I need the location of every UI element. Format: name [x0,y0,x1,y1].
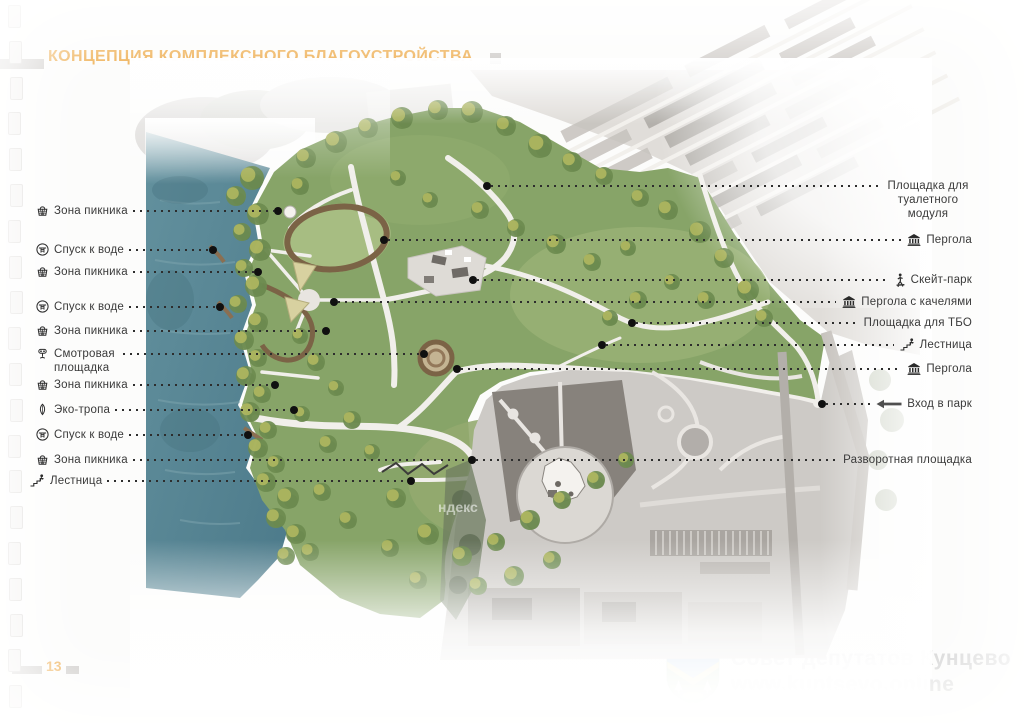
leader-dot [322,327,330,335]
label-pergola-1: Пергола [380,233,972,247]
leader-dot [244,431,252,439]
scanned-page: ндекс КОНЦЕПЦИЯ КОМПЛЕКСНОГО БЛАГОУСТРОЙ… [0,0,1024,723]
eco-leaf-icon [36,403,49,416]
label-text: Пергола [926,233,972,247]
label-stairs-left: Лестница [30,474,415,488]
leader-line [133,384,271,386]
leader-line [133,330,322,332]
stairs-person-icon [900,338,915,351]
label-text: Спуск к воде [54,428,124,442]
label-pergola-swings: Пергола с качелями [330,295,972,309]
label-pergola-2: Пергола [453,362,972,376]
label-turnaround-area: Разворотная площадка [468,453,972,467]
label-stairs-right: Лестница [598,338,972,352]
label-text: Лестница [920,338,972,352]
arrow-left-icon [876,399,902,409]
leader-line [477,279,889,281]
water-descent-icon [36,428,49,441]
leader-line [636,322,859,324]
leader-dot [420,350,428,358]
label-text: Вход в парк [907,397,972,411]
leader-dot [598,341,606,349]
picnic-basket-icon [36,265,49,278]
water-descent-icon [36,300,49,313]
label-picnic-zone-4: Зона пикника [36,378,279,392]
label-eco-trail: Эко-тропа [36,403,298,417]
leader-line [133,210,274,212]
leader-dot [274,207,282,215]
leader-dot [254,268,262,276]
leader-dot [818,400,826,408]
label-toilet-module-area: Площадка для туалетного модуля [483,179,972,221]
label-text: Скейт-парк [911,273,972,287]
picnic-basket-icon [36,324,49,337]
label-text: Площадка для туалетного модуля [884,179,972,221]
label-water-descent-1: Спуск к воде [36,243,217,257]
label-picnic-zone-2: Зона пикника [36,265,262,279]
picnic-basket-icon [36,453,49,466]
label-text: Смотровая площадка [54,347,118,375]
leader-line [606,344,894,346]
leader-line [133,459,468,461]
label-text: Пергола [926,362,972,376]
water-descent-icon [36,243,49,256]
pergola-icon [842,295,856,308]
leader-line [129,249,209,251]
leader-dot [380,236,388,244]
label-water-descent-3: Спуск к воде [36,428,252,442]
label-picnic-zone-1: Зона пикника [36,204,282,218]
leader-dot [407,477,415,485]
leader-line [338,301,836,303]
label-text: Лестница [50,474,102,488]
leader-dot [330,298,338,306]
pergola-icon [907,362,921,375]
label-text: Спуск к воде [54,243,124,257]
leader-line [461,368,901,370]
leader-line [133,271,254,273]
label-picnic-zone-3: Зона пикника [36,324,330,338]
label-skate-park: Скейт-парк [469,273,972,287]
leader-dot [483,182,491,190]
label-park-entrance: Вход в парк [818,397,972,411]
label-text: Зона пикника [54,378,128,392]
leader-line [129,434,244,436]
picnic-basket-icon [36,204,49,217]
label-text: Спуск к воде [54,300,124,314]
label-text: Зона пикника [54,204,128,218]
picnic-basket-icon [36,378,49,391]
label-water-descent-2: Спуск к воде [36,300,224,314]
skater-icon [895,273,906,287]
leader-dot [290,406,298,414]
label-text: Площадка для ТБО [864,316,972,330]
leader-dot [216,303,224,311]
imagery-watermark: ндекс [438,499,478,515]
leader-line [491,185,879,187]
leader-line [129,306,216,308]
label-text: Пергола с качелями [861,295,972,309]
label-text: Зона пикника [54,265,128,279]
viewpoint-binoculars-icon [36,347,49,360]
leader-dot [468,456,476,464]
leader-line [123,353,420,355]
leader-line [388,239,901,241]
pergola-icon [907,233,921,246]
leader-line [476,459,838,461]
leader-line [107,480,407,482]
leader-dot [469,276,477,284]
leader-line [115,409,290,411]
label-text: Зона пикника [54,453,128,467]
leader-dot [453,365,461,373]
stairs-person-icon [30,474,45,487]
leader-dot [209,246,217,254]
label-text: Зона пикника [54,324,128,338]
leader-line [826,403,870,405]
label-text: Разворотная площадка [843,453,972,467]
leader-dot [628,319,636,327]
label-text: Эко-тропа [54,403,110,417]
leader-dot [271,381,279,389]
label-viewpoint: Смотровая площадка [36,347,428,375]
label-picnic-zone-5: Зона пикника [36,453,468,467]
label-waste-area: Площадка для ТБО [628,316,972,330]
